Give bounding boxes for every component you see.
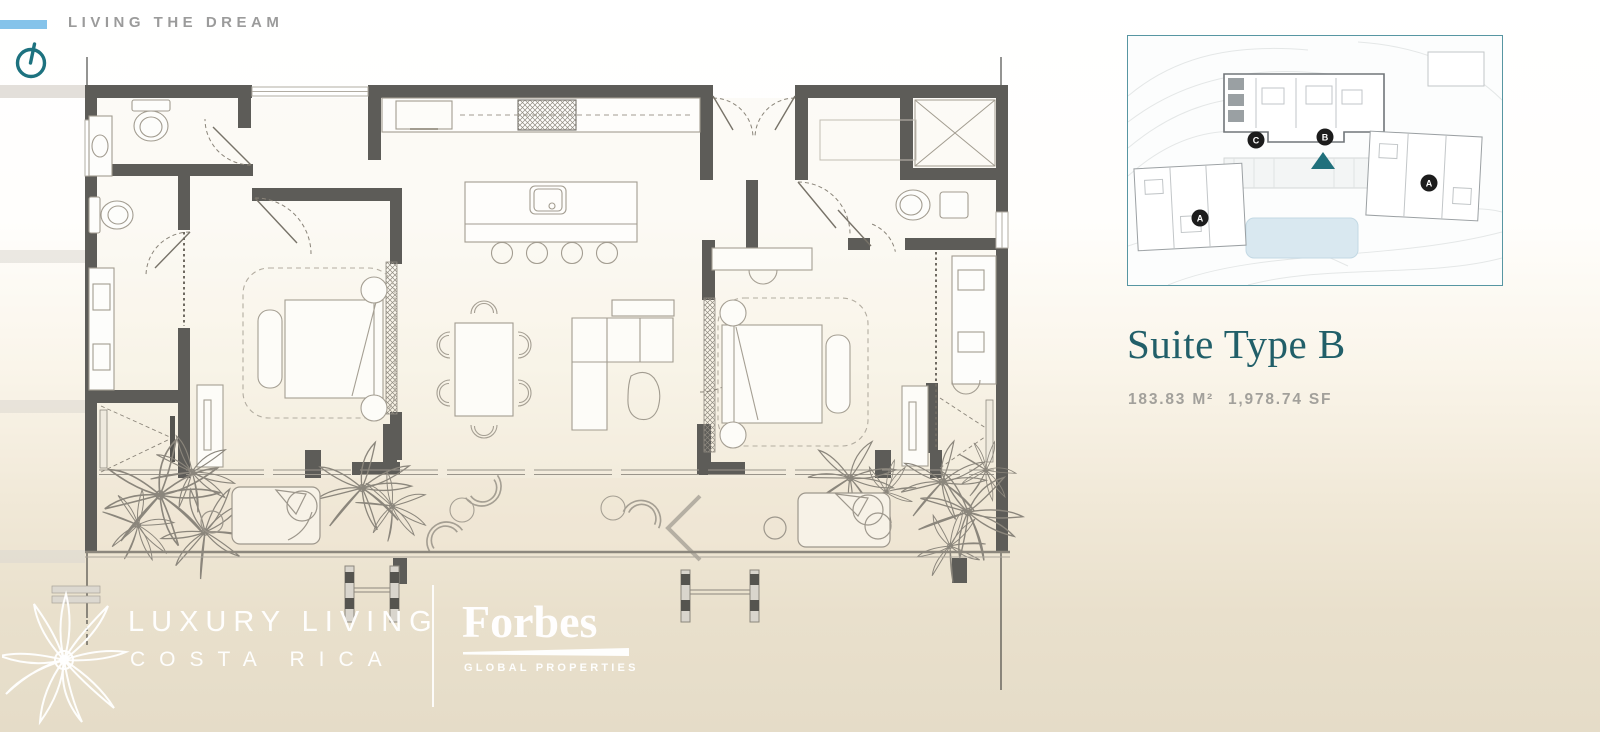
partner-logo: Forbes xyxy=(462,595,597,648)
site-plan-inset: C B A A xyxy=(1127,35,1503,286)
suite-area-imperial: 1,978.74 SF xyxy=(1228,391,1332,408)
page-tagline: LIVING THE DREAM xyxy=(68,14,283,31)
outbuilding xyxy=(1428,52,1484,86)
deck xyxy=(1224,158,1384,188)
suite-b-building xyxy=(1224,74,1384,142)
marker-a-left: A xyxy=(1197,214,1204,224)
floor-area xyxy=(97,98,996,478)
brand-divider xyxy=(432,585,434,707)
accent-bar xyxy=(0,20,47,29)
suite-a-left-building xyxy=(1134,163,1246,251)
marker-c: C xyxy=(1253,136,1260,146)
brand-name-line1: LUXURY LIVING xyxy=(128,606,439,639)
marker-b: B xyxy=(1322,133,1329,143)
suite-title: Suite Type B xyxy=(1127,320,1346,368)
palm-flower-logo-icon xyxy=(2,584,132,732)
brand-name-line2: COSTA RICA xyxy=(130,648,396,672)
north-indicator-icon xyxy=(13,41,53,85)
partner-tagline: GLOBAL PROPERTIES xyxy=(464,662,639,674)
site-plan-drawing: C B A A xyxy=(1128,36,1502,285)
suite-area-metric: 183.83 M² xyxy=(1128,391,1214,408)
pool xyxy=(1246,218,1358,258)
partner-logo-underline xyxy=(463,648,631,657)
suite-area: 183.83 M²1,978.74 SF xyxy=(1128,391,1346,409)
suite-a-right-building xyxy=(1366,131,1482,221)
marker-a-right: A xyxy=(1426,179,1433,189)
